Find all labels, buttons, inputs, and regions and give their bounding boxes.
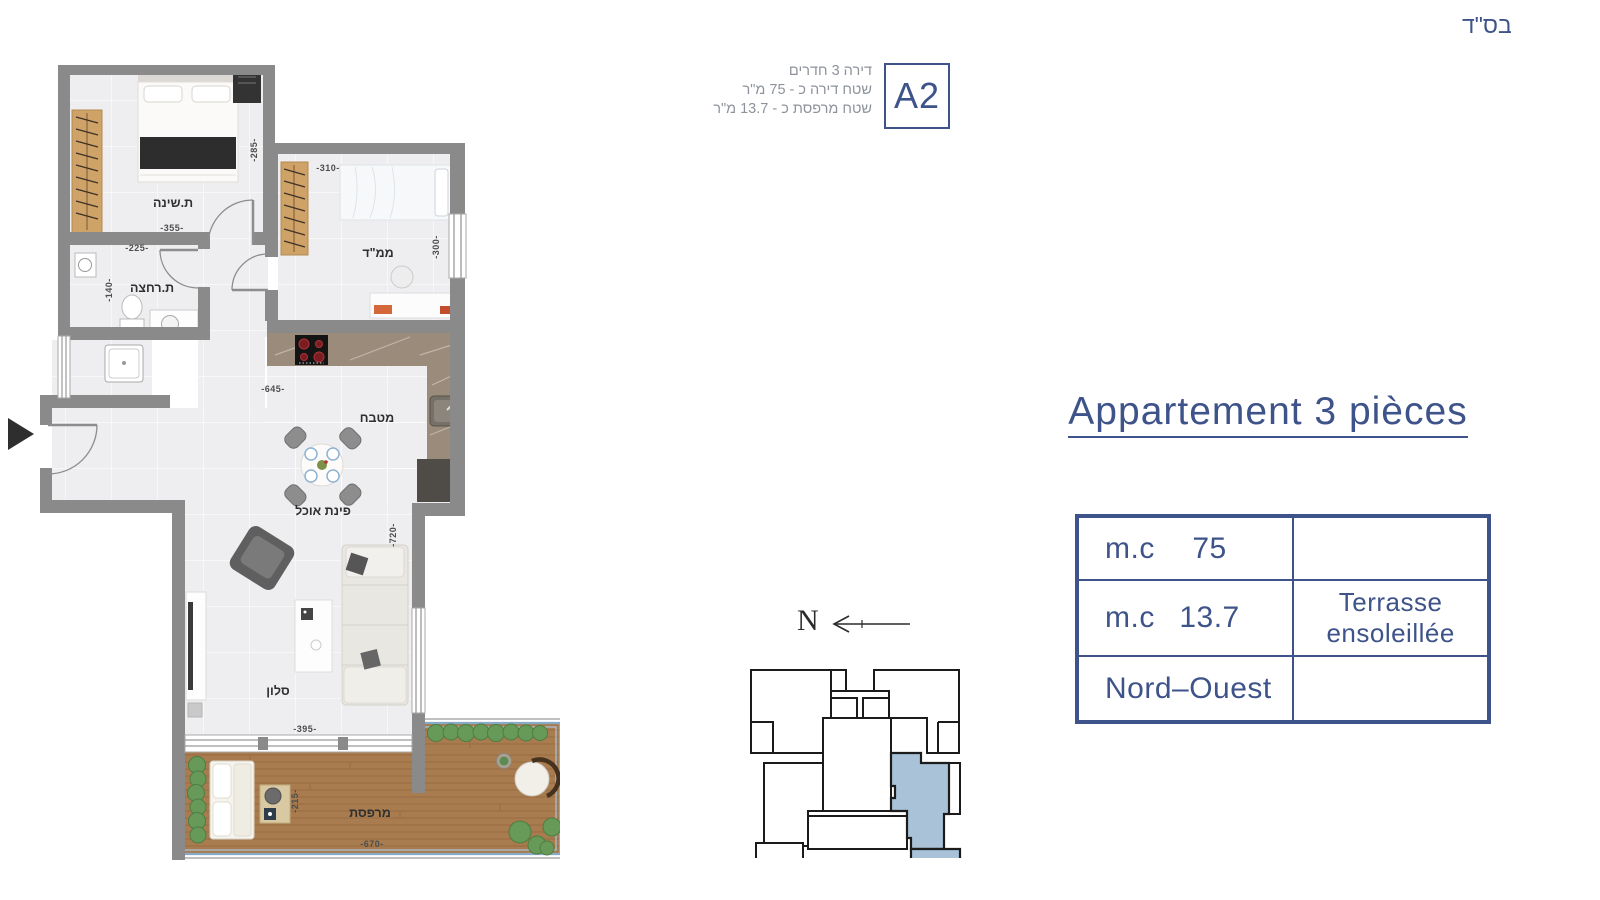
keyplan-room-bottom [808,816,907,849]
terrace-sliding-door [185,735,412,752]
label-dining: פינת אוכל [295,504,351,518]
spec-table: m.c 75 m.c 13.7 Terrasse ensoleillée Nor… [1075,514,1491,724]
table-cell-empty-1 [1293,517,1488,580]
dim-living-height: -720- [388,523,398,547]
sofa [342,545,408,705]
washer-icon [75,253,96,277]
table-row-orientation: Nord–Ouest [1078,656,1293,721]
toilet-icon [120,295,144,328]
bsd-inscription: בס"ד [1462,12,1512,39]
table-row-terrace: m.c 13.7 [1078,580,1293,656]
bedroom-wardrobe [72,110,102,233]
keyplan-highlighted-tab [911,849,960,858]
label-saferoom: ממ"ד [362,246,393,260]
bedroom-bed [138,73,238,182]
north-arrow-icon [822,610,922,638]
terrace-lounger [210,761,254,839]
label-bathroom: ת.רחצה [130,281,174,295]
terrace-label: m.c [1105,601,1155,635]
dim-terrace-height: -215- [290,789,300,813]
area-value: 75 [1155,532,1292,566]
stove-icon [295,335,328,365]
dim-kitchen-width: -645- [261,384,285,394]
summary-line-terrace: שטח מרפסת כ - 13.7 מ"ר [628,100,872,119]
area-label: m.c [1105,532,1155,566]
tv-console [186,592,206,717]
entrance-arrow-icon [8,418,34,450]
keyplan-core [831,691,889,718]
dim-terrace-width: -670- [360,839,384,849]
building-key-plan [731,646,965,858]
terrace-value: 13.7 [1155,601,1292,635]
dim-bath-height: -140- [104,278,114,302]
keyplan-room-topleft [751,670,831,753]
keyplan-room-bottomleft [756,843,803,858]
keyplan-room-right [949,763,960,814]
label-kitchen: מטבח [360,411,394,425]
dim-bedroom-width: -355- [160,223,184,233]
table-cell-empty-2 [1293,656,1488,721]
label-bedroom: ת.שינה [153,196,193,210]
dim-bath-width: -225- [125,243,149,253]
table-row-area: m.c 75 [1078,517,1293,580]
saferoom-bed [340,165,452,220]
living-side-window [412,608,425,713]
label-living: סלון [266,684,290,698]
keyplan-tab-a [831,670,846,691]
floor-plan: ת.שינה ממ"ד ת.רחצה מטבח פינת אוכל סלון מ… [5,55,560,867]
shower-tray [105,345,143,382]
saferoom-window [449,214,466,278]
unit-badge-label: A2 [894,75,940,117]
unit-badge: A2 [884,63,950,129]
dim-saferoom-width: -310- [316,163,340,173]
keyplan-room-center [823,718,891,811]
page-title: Appartement 3 pièces [1040,390,1496,434]
summary-line-rooms: דירה 3 חדרים [628,62,872,81]
coffee-table [295,600,332,672]
compass-north-label: N [797,604,819,638]
saferoom-wardrobe [281,162,308,255]
label-terrace: מרפסת [349,806,391,820]
table-cell-terrasse: Terrasse ensoleillée [1293,580,1488,656]
dim-saferoom-height: -300- [431,235,441,259]
dim-bedroom-height: -285- [249,138,259,162]
terrace-side-table [260,785,290,823]
summary-line-area: שטח דירה כ - 75 מ"ר [628,81,872,100]
orientation-value: Nord–Ouest [1105,672,1272,706]
utility-window [58,336,70,398]
dim-living-width: -395- [293,724,317,734]
apartment-summary: דירה 3 חדרים שטח דירה כ - 75 מ"ר שטח מרפ… [628,62,872,119]
